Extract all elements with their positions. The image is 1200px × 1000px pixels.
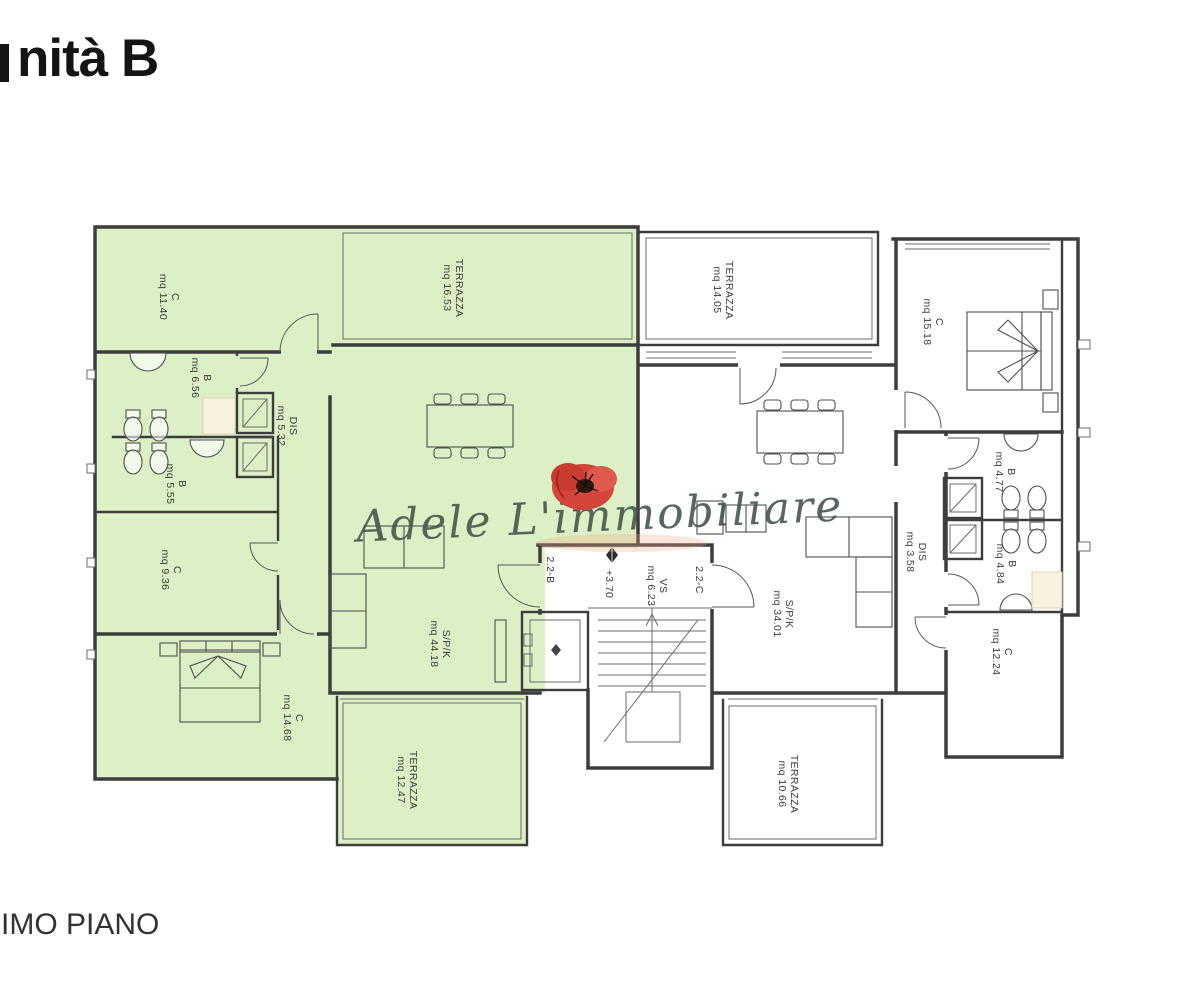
bed-c (967, 290, 1058, 412)
sink-b477 (1004, 434, 1038, 451)
room-label-terrazza-10-66: TERRAZZAmq 10.66 (776, 755, 800, 814)
floor-plan: Cmq 11.40TERRAZZAmq 16.53TERRAZZAmq 14.0… (0, 0, 1200, 1000)
staircase (598, 608, 706, 742)
room-label-c-15-18: Cmq 15.18 (921, 299, 945, 346)
room-label-c-12-24: Cmq 12.24 (990, 629, 1014, 676)
shower-b484 (1032, 572, 1062, 608)
room-label-apt-2-2-b: 2.2-B (544, 556, 556, 583)
room-label-level-3-70: +3.70 (603, 570, 615, 599)
room-label-dis-3-58: DISmq 3.58 (904, 532, 928, 573)
room-label-terrazza-14-05: TERRAZZAmq 14.05 (711, 261, 735, 320)
room-label-vs-6-23: VSmq 6.23 (645, 566, 669, 607)
room-label-spk-34-01: S/P/Kmq 34.01 (771, 591, 795, 638)
room-label-terrazza-12-47: TERRAZZAmq 12.47 (395, 751, 419, 810)
room-label-apt-2-2-c: 2.2-C (693, 566, 705, 594)
room-label-terrazza-16-53: TERRAZZAmq 16.53 (441, 259, 465, 318)
sofa-c (806, 517, 892, 627)
floor-caption: IMO PIANO (1, 908, 159, 942)
page: nità B (0, 0, 1200, 1000)
shower-b656 (203, 398, 235, 434)
sink-b484 (1000, 594, 1032, 610)
dining-table-c (757, 400, 843, 464)
